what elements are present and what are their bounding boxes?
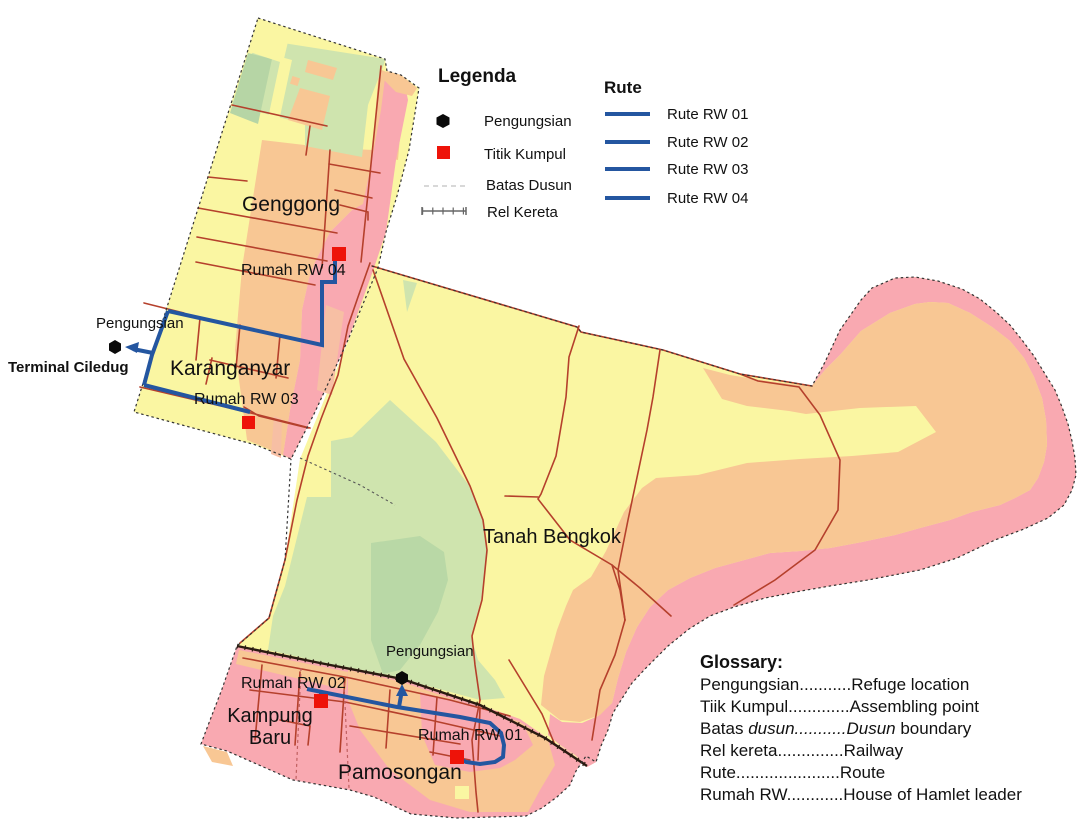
svg-text:Legenda: Legenda	[438, 66, 517, 87]
svg-text:Rumah RW 03: Rumah RW 03	[194, 391, 299, 408]
svg-text:Pengungsian: Pengungsian	[484, 113, 572, 130]
svg-text:Pengungsian...........Refuge l: Pengungsian...........Refuge location	[700, 675, 969, 694]
svg-text:Rute......................Rout: Rute......................Route	[700, 763, 885, 782]
svg-text:Rute RW 03: Rute RW 03	[667, 161, 748, 178]
svg-text:Rumah RW 01: Rumah RW 01	[418, 727, 523, 744]
svg-text:Pengungsian: Pengungsian	[386, 643, 474, 660]
svg-text:Terminal Ciledug: Terminal Ciledug	[8, 359, 129, 376]
svg-text:Rumah RW............House of H: Rumah RW............House of Hamlet lead…	[700, 785, 1022, 804]
svg-text:Batas Dusun: Batas Dusun	[486, 177, 572, 194]
svg-text:Rute RW 04: Rute RW 04	[667, 190, 748, 207]
svg-text:Genggong: Genggong	[242, 193, 340, 216]
svg-text:Pengungsian: Pengungsian	[96, 315, 184, 332]
svg-text:Tanah Bengkok: Tanah Bengkok	[483, 526, 622, 548]
svg-text:Rel kereta..............Railwa: Rel kereta..............Railway	[700, 741, 904, 760]
svg-text:Rute RW 01: Rute RW 01	[667, 106, 748, 123]
svg-text:Rute: Rute	[604, 78, 642, 97]
svg-text:Titik Kumpul: Titik Kumpul	[484, 146, 566, 163]
svg-text:Rute RW 02: Rute RW 02	[667, 134, 748, 151]
svg-text:Kampung: Kampung	[227, 705, 313, 727]
svg-text:Rumah RW 04: Rumah RW 04	[241, 262, 346, 279]
svg-text:Pamosongan: Pamosongan	[338, 761, 462, 784]
svg-text:Rel Kereta: Rel Kereta	[487, 204, 559, 221]
svg-text:Glossary:: Glossary:	[700, 652, 783, 672]
svg-text:Karanganyar: Karanganyar	[170, 357, 290, 380]
svg-text:Tiik Kumpul.............Assemb: Tiik Kumpul.............Assembling point	[700, 697, 979, 716]
svg-text:Rumah RW 02: Rumah RW 02	[241, 675, 346, 692]
svg-text:Batas dusun...........Dusun bo: Batas dusun...........Dusun boundary	[700, 719, 972, 738]
svg-text:Baru: Baru	[249, 727, 291, 749]
